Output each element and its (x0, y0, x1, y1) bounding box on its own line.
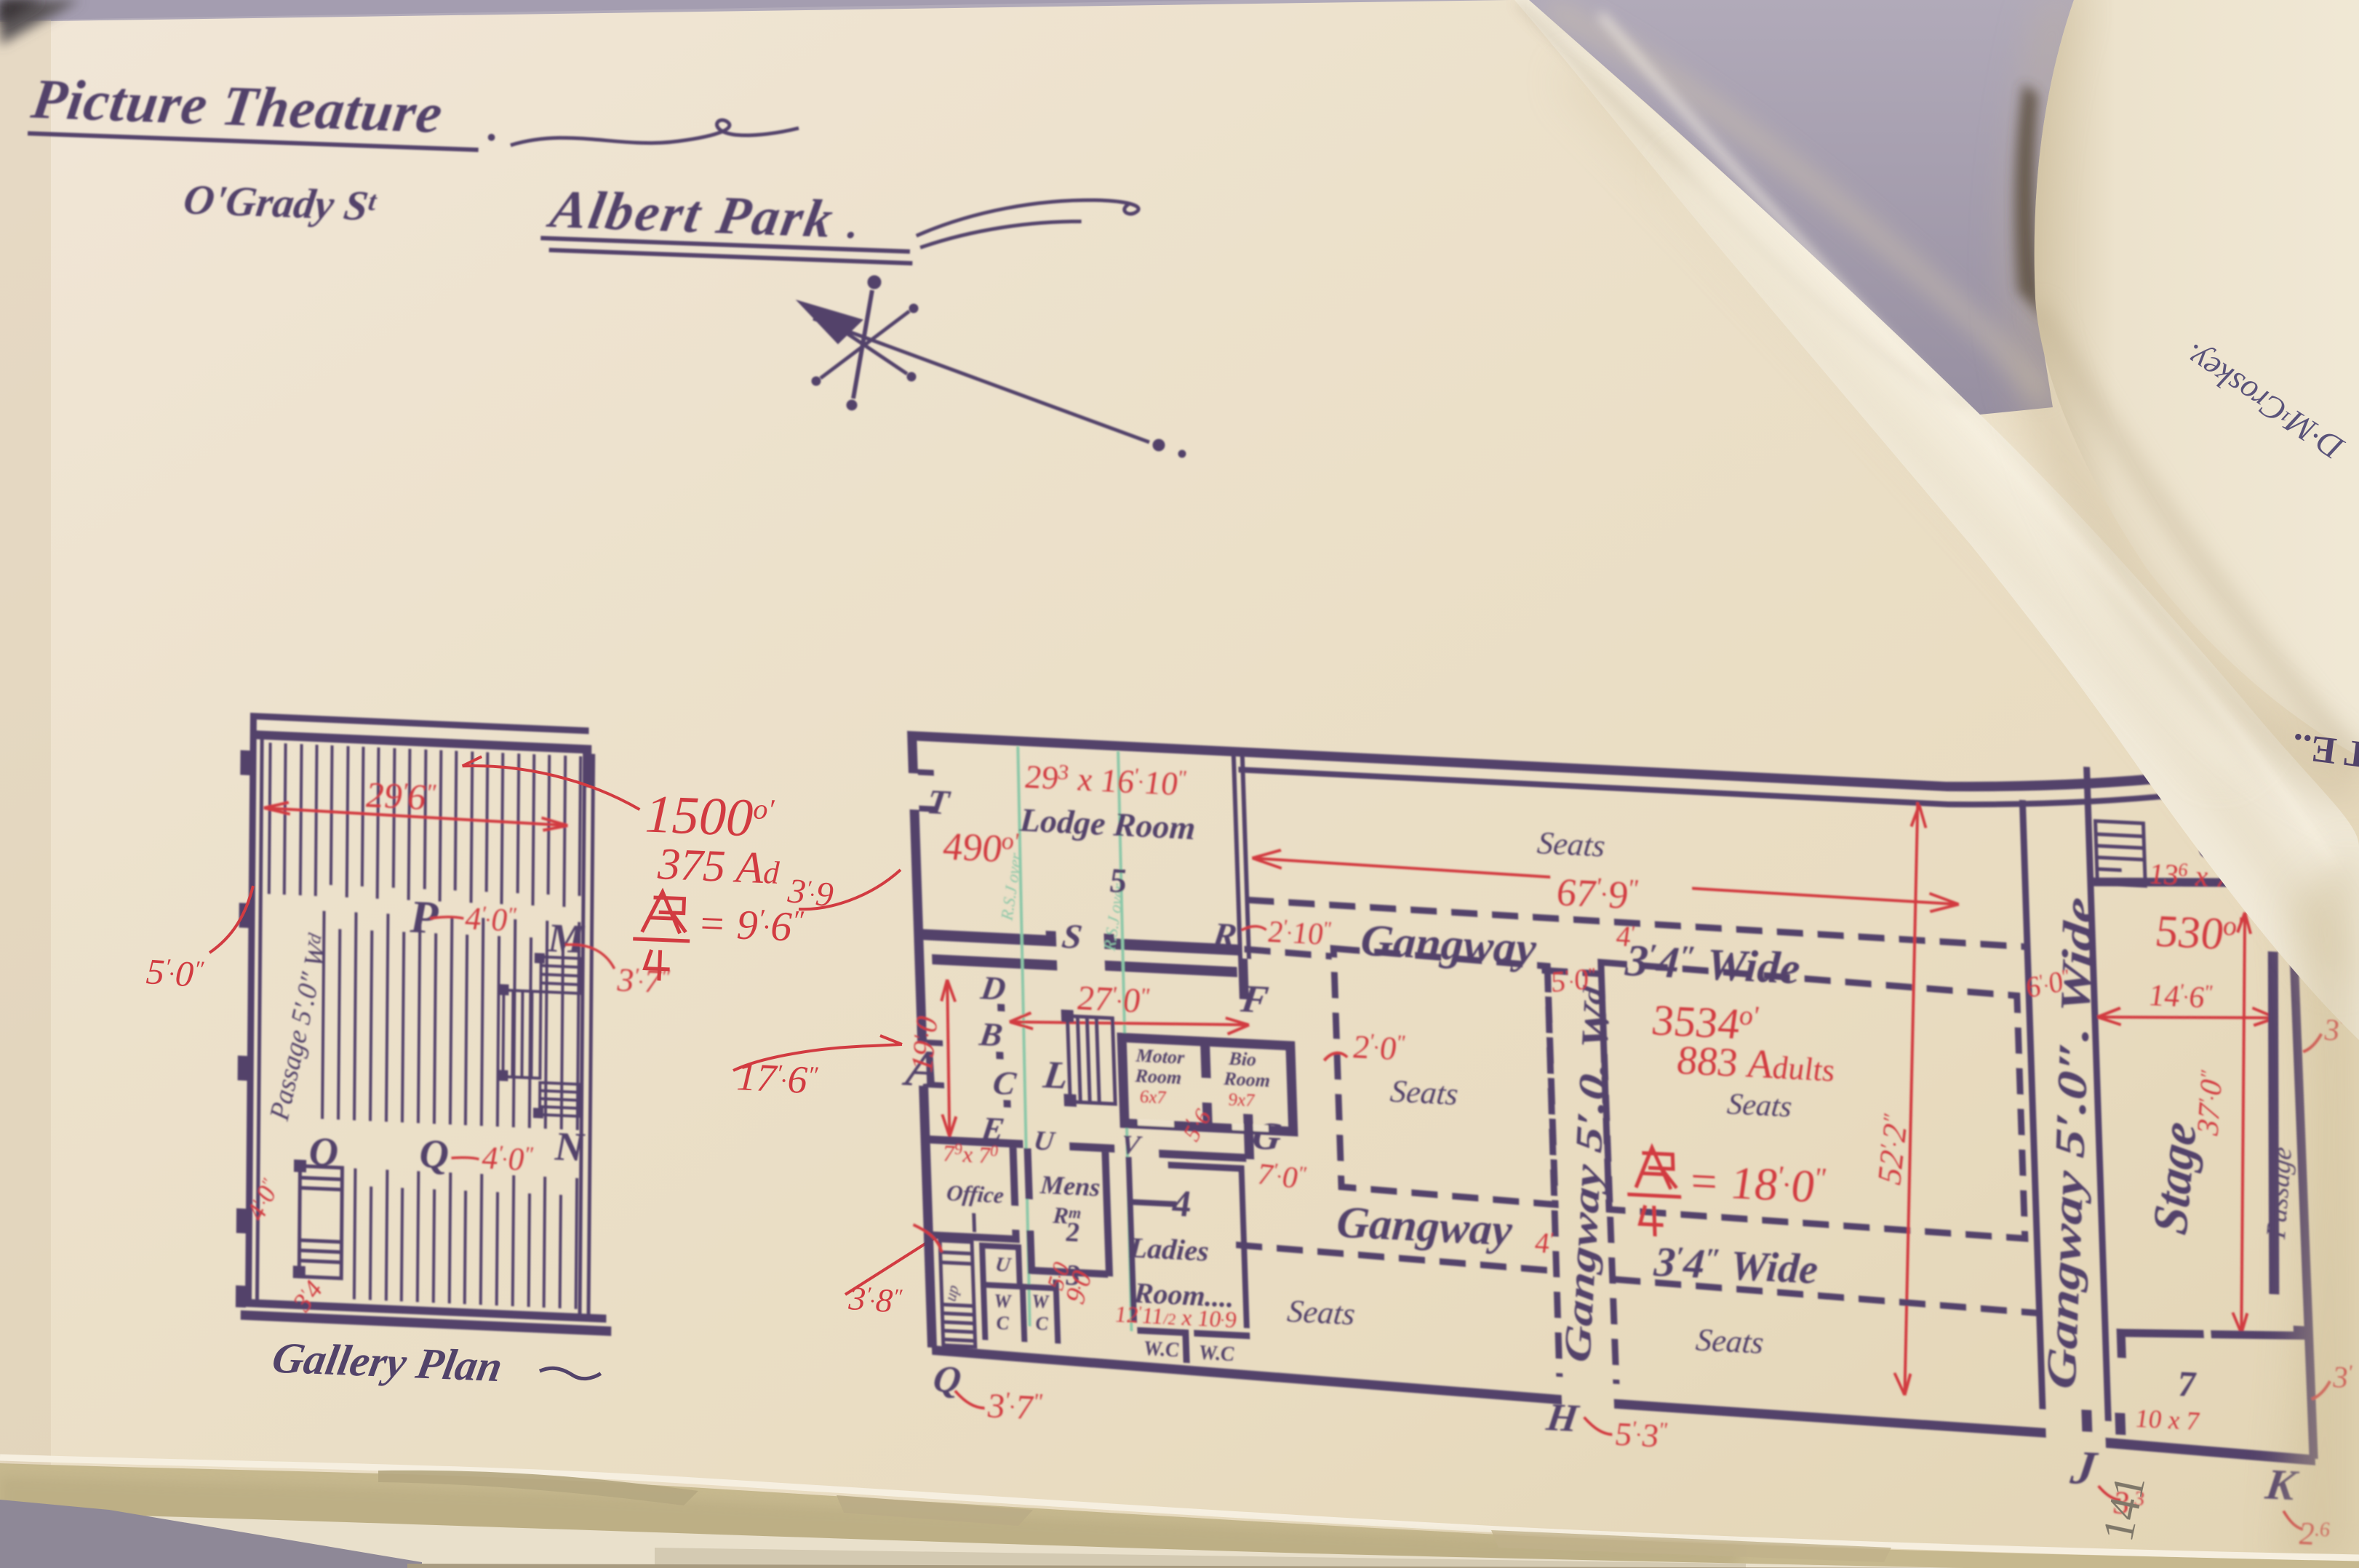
svg-text:Room: Room (1134, 1065, 1183, 1088)
svg-text:Room: Room (1222, 1068, 1271, 1091)
svg-text:D: D (978, 969, 1007, 1007)
svg-text:79x 70: 79x 70 (942, 1139, 998, 1169)
svg-text:Q: Q (419, 1131, 449, 1177)
svg-text:O: O (308, 1129, 338, 1176)
svg-text:Office: Office (945, 1180, 1005, 1208)
svg-text:4: 4 (1171, 1183, 1192, 1225)
svg-text:W: W (1031, 1291, 1050, 1313)
svg-text:Seats: Seats (1389, 1073, 1460, 1112)
svg-text:C: C (1035, 1313, 1049, 1335)
svg-text:C: C (996, 1312, 1010, 1334)
svg-text:Bio: Bio (1228, 1048, 1258, 1071)
svg-text:Stage: Stage (2142, 1118, 2206, 1239)
svg-text:T E..: T E.. (2290, 725, 2359, 776)
svg-text:10 x 7: 10 x 7 (2135, 1404, 2201, 1436)
svg-text:9x7: 9x7 (1228, 1090, 1256, 1111)
svg-text:Seats: Seats (1694, 1322, 1765, 1361)
svg-text:7: 7 (2177, 1363, 2198, 1404)
svg-text:.: . (487, 102, 500, 151)
svg-text:Seats: Seats (1536, 825, 1607, 863)
svg-text:= 18′.0″: = 18′.0″ (1687, 1154, 1828, 1212)
svg-text:W.C: W.C (1143, 1337, 1180, 1361)
svg-text:Gallery Plan: Gallery Plan (268, 1334, 506, 1391)
svg-text:O'Grady St: O'Grady St (180, 176, 380, 230)
svg-text:M: M (547, 916, 586, 962)
svg-text:6x7: 6x7 (1139, 1087, 1167, 1108)
svg-text:2: 2 (1065, 1217, 1080, 1248)
svg-text:Ladies: Ladies (1127, 1231, 1210, 1268)
svg-text:N: N (554, 1124, 586, 1170)
svg-text:375 Ad: 375 Ad (656, 839, 781, 894)
svg-text:W: W (994, 1290, 1013, 1312)
svg-text:Mens: Mens (1039, 1170, 1101, 1202)
svg-text:W.C: W.C (1199, 1342, 1235, 1366)
svg-text:19′.0: 19′.0 (906, 1014, 945, 1074)
svg-text:Seats: Seats (1725, 1087, 1793, 1124)
svg-text:Gangway: Gangway (1335, 1198, 1514, 1256)
svg-text:2′.10″: 2′.10″ (1267, 916, 1333, 952)
svg-text:Seats: Seats (1285, 1293, 1357, 1332)
svg-text:5: 5 (1109, 861, 1127, 900)
